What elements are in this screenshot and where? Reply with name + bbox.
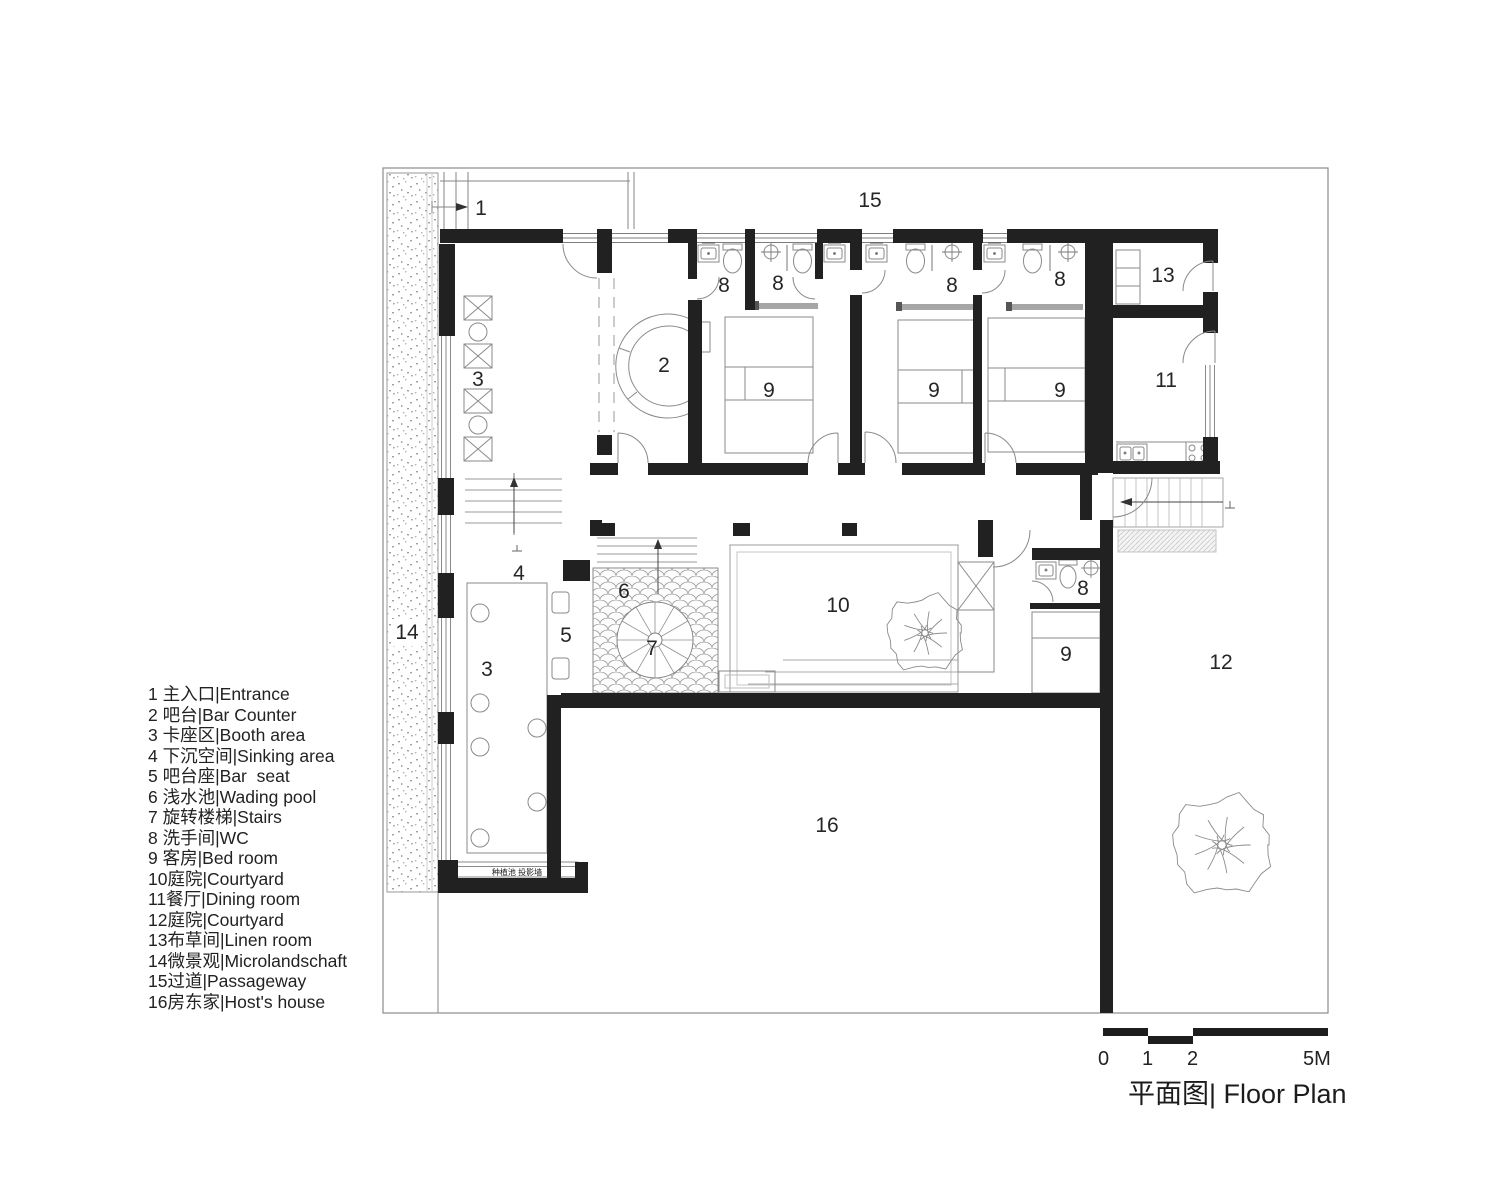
room-label: 11 bbox=[1155, 369, 1177, 392]
room-label: 2 bbox=[658, 354, 670, 377]
furniture-layer bbox=[456, 242, 1235, 877]
room-label: 8 bbox=[718, 274, 730, 297]
door-vestibule bbox=[993, 530, 1030, 567]
room-label: 7 bbox=[646, 637, 658, 660]
room-label: 8 bbox=[772, 272, 784, 295]
room-label: 8 bbox=[1054, 268, 1066, 291]
room-label: 9 bbox=[928, 379, 940, 402]
room-label: 5 bbox=[560, 624, 572, 647]
wc-bottom-fixtures bbox=[1036, 558, 1101, 588]
scale-tick: 0 bbox=[1098, 1048, 1109, 1071]
room-label: 9 bbox=[763, 379, 775, 402]
room-label: 6 bbox=[618, 580, 630, 603]
room-label: 1 bbox=[475, 197, 487, 220]
door-bed2 bbox=[865, 432, 896, 463]
door-room2 bbox=[618, 433, 648, 463]
walls bbox=[438, 229, 1220, 1013]
scale-tick: 1 bbox=[1142, 1048, 1153, 1071]
door-dining-room bbox=[1183, 331, 1215, 363]
room-label: 14 bbox=[395, 621, 419, 644]
room-label: 4 bbox=[513, 562, 525, 585]
door-wc3 bbox=[862, 270, 885, 293]
scale-segment bbox=[1103, 1028, 1148, 1036]
courtyard-deck bbox=[719, 545, 958, 692]
room-label: 9 bbox=[1060, 643, 1072, 666]
stair-up-arrow-icon bbox=[654, 539, 662, 549]
sliding-partition bbox=[599, 278, 614, 432]
entry-mat bbox=[1118, 530, 1216, 552]
bar-seat bbox=[552, 592, 569, 613]
door-stairs bbox=[1113, 478, 1152, 517]
door-bed3 bbox=[985, 433, 1016, 463]
door-main-hall bbox=[563, 244, 597, 278]
scale-tick: 2 bbox=[1187, 1048, 1198, 1071]
kitchen-counter bbox=[1116, 442, 1210, 464]
scale-segment bbox=[1148, 1036, 1193, 1044]
room-label: 3 bbox=[472, 368, 484, 391]
room-label: 9 bbox=[1054, 379, 1066, 402]
planting-annotation: 种植池 投影墙 bbox=[492, 867, 542, 877]
room-label: 3 bbox=[481, 658, 493, 681]
sliding-doors bbox=[753, 301, 1083, 311]
room-label: 16 bbox=[815, 814, 838, 837]
stool-seats bbox=[471, 604, 546, 847]
entrance-arrow-icon bbox=[456, 203, 468, 211]
scale-bar: 0 1 2 5M bbox=[1100, 1026, 1332, 1072]
door-wc4 bbox=[982, 270, 1005, 293]
door-wc-bottom bbox=[1032, 581, 1053, 602]
room-label: 12 bbox=[1209, 651, 1232, 674]
room-label: 15 bbox=[858, 189, 881, 212]
bar-seat bbox=[552, 658, 569, 679]
scale-tick: 5M bbox=[1303, 1048, 1331, 1071]
microlandscape-strip bbox=[387, 173, 438, 892]
drawing-title: 平面图| Floor Plan bbox=[1128, 1072, 1358, 1111]
door-linen-room bbox=[1183, 261, 1213, 291]
stair-arrow-icon bbox=[1120, 498, 1132, 506]
entrance-walkway bbox=[432, 172, 634, 229]
door-wc2 bbox=[793, 277, 815, 299]
door-wc1 bbox=[697, 277, 719, 299]
room-label: 10 bbox=[826, 594, 849, 617]
scale-segment bbox=[1193, 1028, 1328, 1036]
floor-plan-page: 1 主入口|Entrance2 吧台|Bar Counter3 卡座区|Boot… bbox=[0, 0, 1500, 1184]
pool-landing bbox=[597, 538, 697, 562]
wardrobe bbox=[958, 562, 994, 672]
right-stairs bbox=[1113, 478, 1235, 552]
room-label: 8 bbox=[1077, 577, 1089, 600]
room-label: 13 bbox=[1151, 264, 1174, 287]
room-label: 8 bbox=[946, 274, 958, 297]
floor-plan-canvas: 种植池 投影墙 1158888813233999911456710121416 bbox=[0, 0, 1500, 1184]
bed-room3-furniture bbox=[988, 318, 1085, 452]
linen-closet bbox=[1116, 250, 1140, 304]
